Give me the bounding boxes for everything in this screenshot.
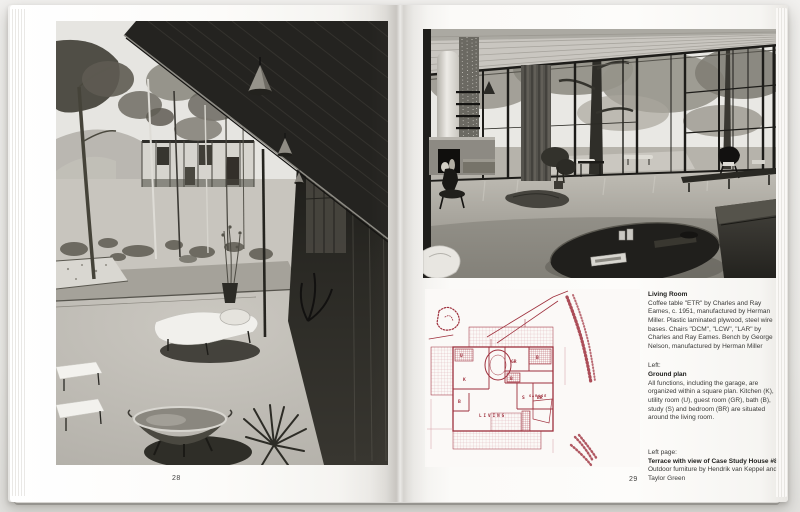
caption-terrace: Left page: Terrace with view of Case Stu… (648, 449, 778, 484)
bench-sofa (715, 199, 776, 278)
page-right: U K GR B B B S BR LIVING GARAGE Living R… (396, 5, 788, 502)
caption-column: Living Room Coffee table "ETR" by Charle… (648, 291, 778, 484)
open-book: 28 (8, 5, 788, 502)
caption-living-room-body: Coffee table "ETR" by Charles and Ray Ea… (648, 300, 778, 352)
chimney-cylinder (437, 51, 459, 145)
fireplace (429, 137, 495, 175)
caption-ground-plan-ref: Left: (648, 362, 778, 371)
label-living: LIVING (479, 413, 506, 418)
label-bath-top: B (536, 355, 539, 361)
page-number-right: 29 (629, 476, 638, 483)
label-kitchen: K (463, 377, 466, 383)
label-garage: GARAGE (529, 394, 547, 398)
caption-terrace-body: Outdoor furniture by Hendrik van Keppel … (648, 466, 778, 483)
label-bath-small: B (510, 376, 513, 382)
caption-ground-plan-body: All functions, including the garage, are… (648, 380, 778, 423)
bowl (680, 232, 698, 239)
living-room-photo (423, 29, 776, 278)
page-left: 28 (10, 5, 396, 502)
label-guest-room: GR (511, 359, 517, 365)
caption-ground-plan: Left: Ground plan All functions, includi… (648, 362, 778, 422)
label-study: S (522, 395, 525, 401)
ground-plan-drawing: U K GR B B B S BR LIVING GARAGE (425, 289, 640, 467)
caption-ground-plan-heading: Ground plan (648, 371, 778, 380)
book-spread-photo: 28 (0, 0, 800, 512)
caption-terrace-ref: Left page: (648, 449, 778, 458)
terrace-photo (56, 21, 388, 465)
molded-chair (423, 246, 460, 278)
caption-terrace-heading: Terrace with view of Case Study House #8 (648, 458, 778, 467)
distant-house (142, 140, 254, 187)
label-bath-left: B (458, 399, 461, 405)
caption-living-room-heading: Living Room (648, 291, 778, 300)
caption-living-room: Living Room Coffee table "ETR" by Charle… (648, 291, 778, 351)
label-utility: U (460, 353, 463, 359)
page-number-left: 28 (172, 475, 181, 482)
